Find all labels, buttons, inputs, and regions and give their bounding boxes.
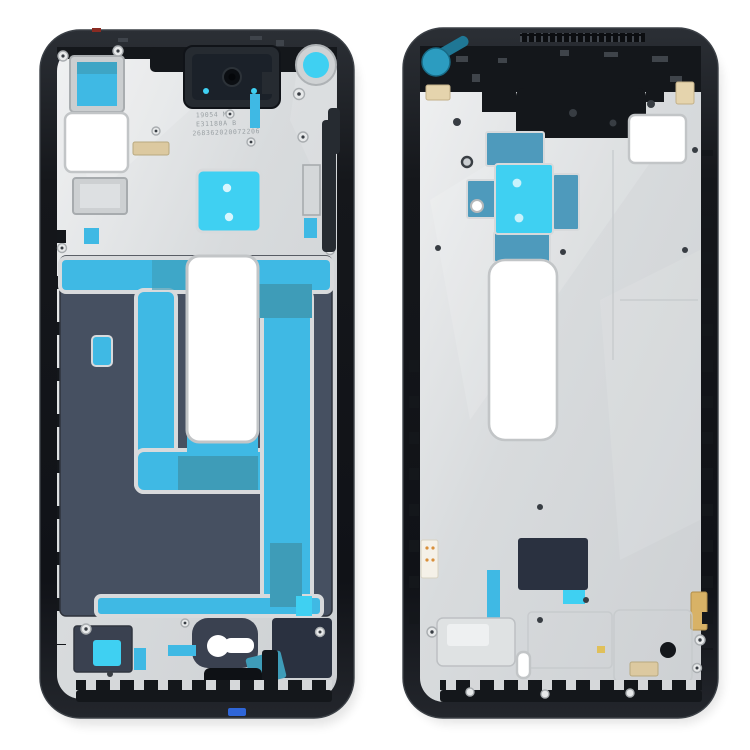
camera-hole-film: [296, 45, 336, 85]
vent-slot: [472, 74, 480, 82]
beige-sticker: [676, 82, 694, 104]
earpiece-slot: [250, 36, 262, 40]
vent-slot: [456, 56, 468, 62]
sticker-center: [495, 164, 553, 234]
graphite-sheet-assembly: [60, 256, 332, 616]
phone-frames-photo: 19054 M E31180A B 268362020072206: [0, 0, 750, 750]
plate-hole: [462, 157, 472, 167]
screw-hole: [569, 109, 577, 117]
screw-hole: [537, 617, 543, 623]
cutout-window: [629, 115, 686, 163]
etched-line-2: E31180A B: [196, 119, 237, 128]
center-cutout-slot: [187, 256, 258, 442]
screw-hole: [610, 120, 617, 127]
screw-hole: [560, 249, 566, 255]
adhesive-tab: [304, 218, 317, 238]
screw: [84, 627, 87, 630]
camera-lens-pupil: [229, 74, 236, 81]
bottom-comb: [76, 680, 332, 690]
left-frame-front-view: 19054 M E31180A B 268362020072206: [40, 28, 358, 726]
screw-hole: [537, 504, 543, 510]
screw: [107, 671, 113, 677]
earpiece-slot: [276, 40, 284, 46]
gold-dot-sticker: [597, 646, 605, 653]
sticker-dot: [515, 214, 524, 223]
vent-slot: [498, 58, 507, 63]
screw: [319, 631, 322, 634]
right-frame-inner-view: [403, 28, 722, 724]
screw-hole: [647, 100, 655, 108]
adhesive-tab: [84, 228, 99, 244]
screw-hole: [435, 245, 441, 251]
cyan-square-sticker: [197, 170, 261, 232]
top-comb: [520, 33, 645, 42]
keyhole-cutout: [224, 638, 254, 653]
sensor-bracket: [262, 72, 278, 94]
adhesive-tab: [563, 590, 585, 604]
top-left-adhesive: [70, 56, 124, 112]
teal-patch: [258, 284, 312, 318]
teal-patch: [178, 456, 258, 490]
screw: [698, 638, 701, 641]
sticker-dot: [513, 179, 522, 188]
bottom-bar: [76, 690, 332, 702]
screw: [696, 667, 699, 670]
white-dot-sticker: [421, 540, 438, 578]
plate-cutout-window: [65, 113, 128, 172]
side-clip: [328, 108, 340, 154]
sticker-arm-right: [553, 174, 579, 230]
vent-slot: [604, 52, 618, 57]
bottom-comb: [440, 680, 702, 690]
center-cutout-slot: [489, 260, 557, 440]
navy-shield-panel: [518, 538, 588, 590]
blue-alignment-tab: [228, 708, 246, 716]
screw: [184, 622, 187, 625]
screw-hole: [682, 247, 688, 253]
bracket-dot: [251, 88, 257, 94]
etched-line-1: 19054 M: [196, 110, 228, 119]
red-paint-mark: [92, 28, 101, 32]
product-photo-canvas: 19054 M E31180A B 268362020072206: [0, 0, 750, 750]
screw-boss: [541, 690, 549, 698]
left-rail-clips: [409, 340, 419, 640]
camera-hole-film: [422, 48, 450, 76]
bracket-dot: [203, 88, 209, 94]
recessed-bracket-inner: [80, 184, 120, 208]
right-rail-clips: [702, 150, 713, 650]
adhesive-strip-small: [250, 94, 260, 128]
earpiece-slot: [118, 38, 128, 42]
adhesive-tab: [134, 648, 146, 670]
sticker-arm-bottom: [494, 232, 550, 262]
vent-slot: [652, 56, 668, 62]
mic-slot: [517, 652, 530, 678]
adhesive-tab: [92, 336, 112, 366]
adhesive-tab: [296, 596, 312, 616]
screw-hole: [453, 118, 461, 126]
mic-hole: [660, 642, 676, 658]
adhesive-tab: [168, 645, 196, 656]
side-bracket: [303, 165, 320, 215]
tan-sticker: [630, 662, 658, 676]
screw-hole: [692, 147, 698, 153]
sticker-arm-left: [467, 180, 497, 218]
sticker-arm-top: [486, 132, 544, 166]
speaker-sticker: [93, 640, 121, 666]
screw: [430, 630, 433, 633]
screw-hole: [583, 597, 589, 603]
screw-boss: [626, 689, 634, 697]
vent-slot: [670, 76, 682, 82]
screw-boss: [466, 688, 474, 696]
beige-sticker: [426, 85, 450, 100]
plate-hole: [471, 200, 483, 212]
vent-slot: [560, 50, 569, 56]
bottom-bar: [440, 690, 702, 702]
bracket-emboss-inner: [447, 624, 489, 646]
tan-sticker: [133, 142, 169, 155]
